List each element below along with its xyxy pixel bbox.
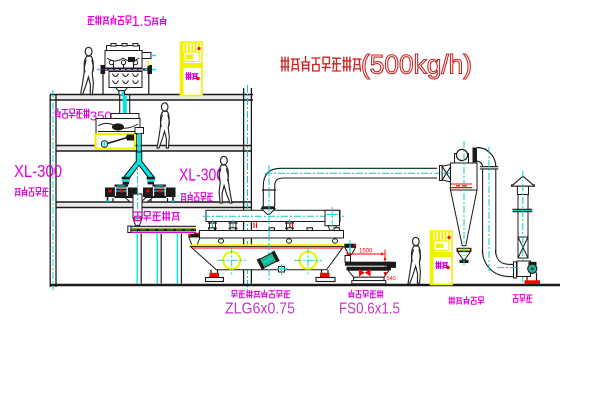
svg-text:(500kg/h): (500kg/h) [361, 50, 472, 80]
svg-text:1.5: 1.5 [132, 14, 152, 30]
svg-text:FS0.6x1.5: FS0.6x1.5 [339, 301, 400, 318]
svg-text:ZLG6x0.75: ZLG6x0.75 [225, 301, 295, 318]
svg-text:1500: 1500 [359, 249, 373, 255]
svg-text:540: 540 [387, 276, 396, 282]
svg-text:XL-300: XL-300 [179, 165, 224, 185]
svg-text:XL-300: XL-300 [14, 161, 62, 181]
